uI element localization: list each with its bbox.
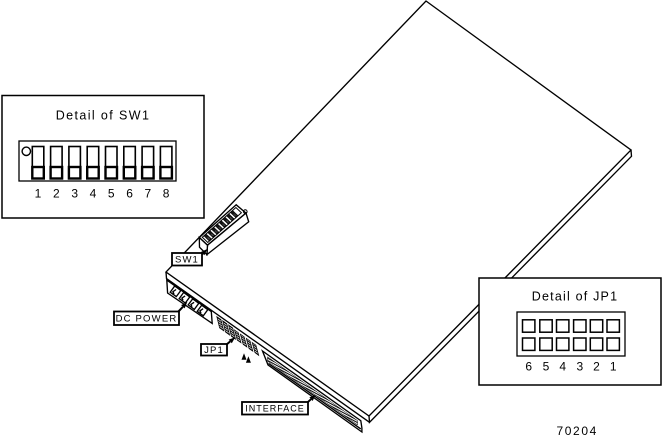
svg-text:3: 3 xyxy=(71,187,78,201)
svg-text:2: 2 xyxy=(593,360,600,374)
svg-text:Detail of JP1: Detail of JP1 xyxy=(532,290,618,304)
svg-text:7: 7 xyxy=(145,187,152,201)
svg-text:5: 5 xyxy=(543,360,550,374)
svg-text:6: 6 xyxy=(525,360,532,374)
svg-text:70204: 70204 xyxy=(557,424,598,438)
svg-text:1: 1 xyxy=(35,187,42,201)
svg-text:4: 4 xyxy=(90,187,97,201)
svg-text:JP1: JP1 xyxy=(204,345,224,356)
svg-text:4: 4 xyxy=(559,360,566,374)
svg-text:DC POWER: DC POWER xyxy=(116,314,178,325)
svg-text:2: 2 xyxy=(53,187,60,201)
svg-text:Detail of SW1: Detail of SW1 xyxy=(56,109,151,123)
svg-text:3: 3 xyxy=(576,360,583,374)
svg-text:SW1: SW1 xyxy=(175,255,199,266)
svg-text:1: 1 xyxy=(610,360,617,374)
svg-text:6: 6 xyxy=(126,187,133,201)
svg-text:INTERFACE: INTERFACE xyxy=(245,404,305,414)
svg-text:8: 8 xyxy=(163,187,170,201)
svg-text:5: 5 xyxy=(108,187,115,201)
